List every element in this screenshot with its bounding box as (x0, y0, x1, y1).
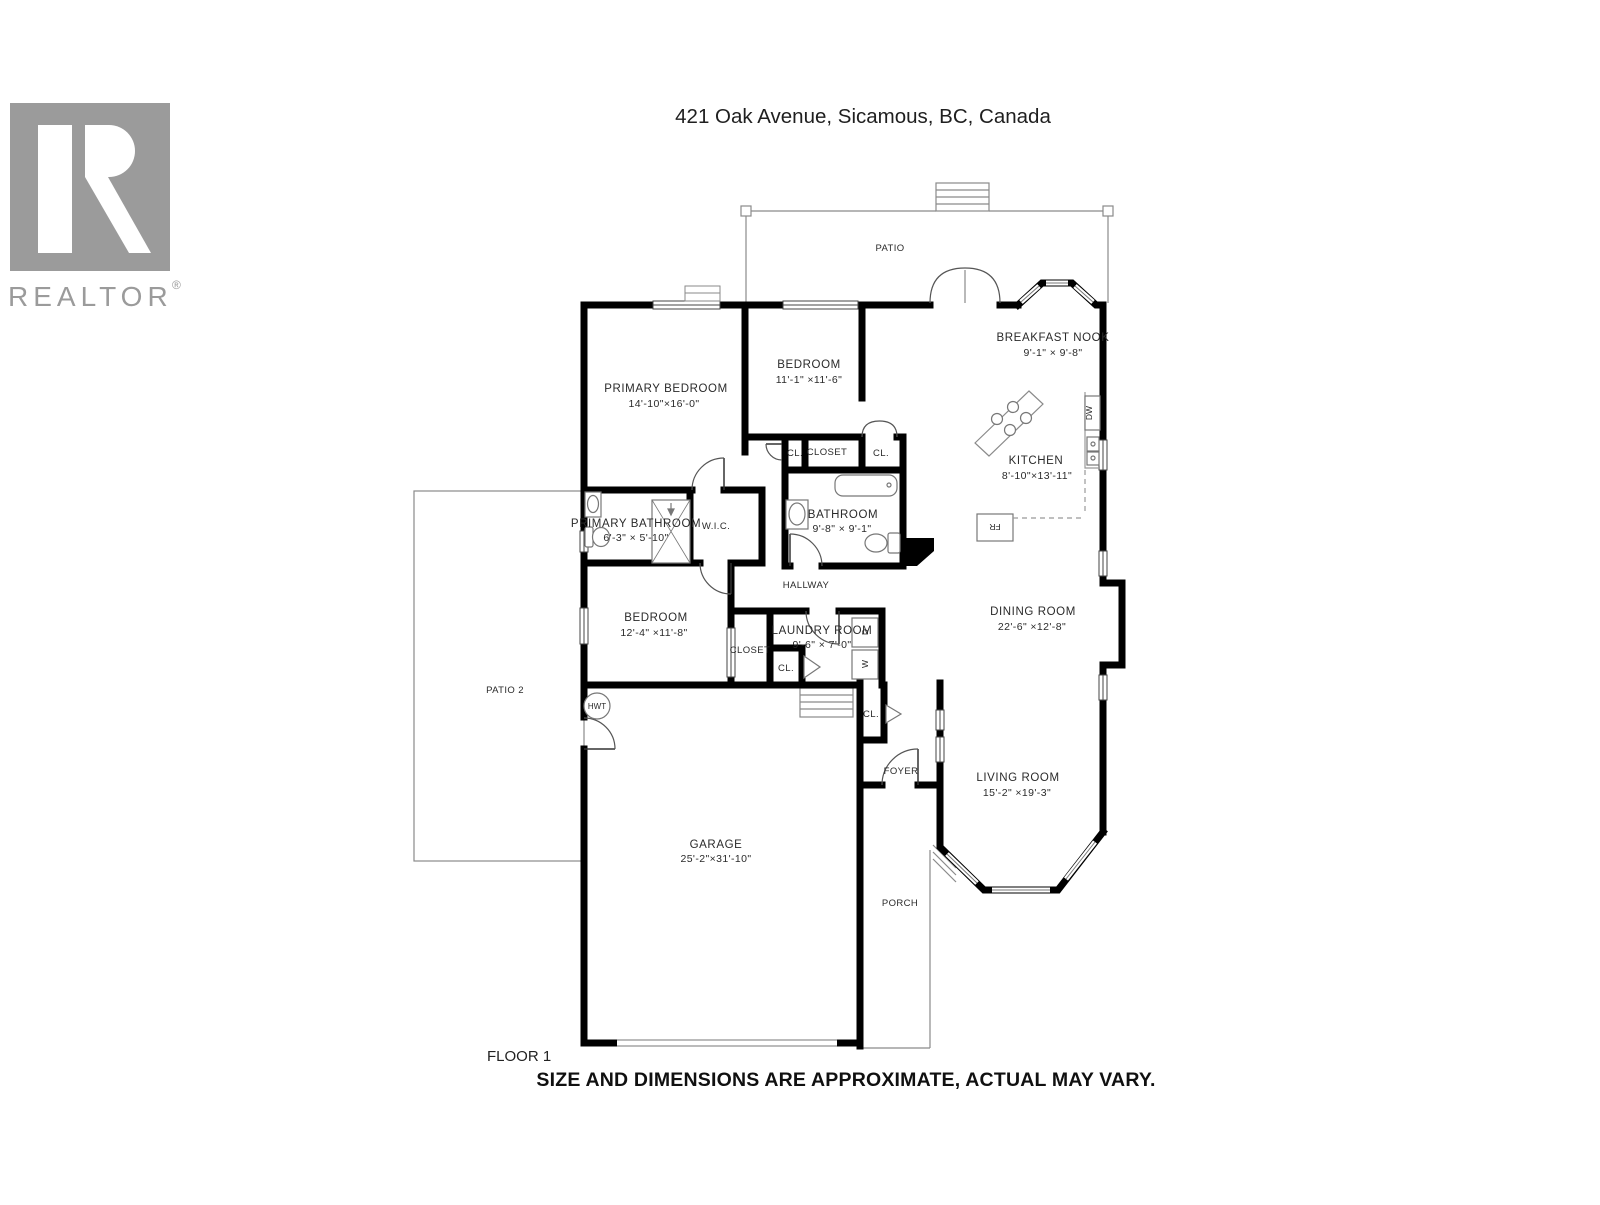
bedroom-closet-double-door (862, 421, 897, 437)
room-dims-laundry: 9'-6" × 7'-0" (793, 639, 852, 651)
floor-label: FLOOR 1 (487, 1048, 551, 1065)
burner (1021, 413, 1032, 424)
room-label-patio: PATIO (875, 243, 904, 254)
room-dims-bedroom-left: 12'-4" ×11'-8" (620, 627, 687, 639)
foyer-closet-bifold (886, 705, 901, 723)
bathroom-sink (786, 500, 808, 529)
room-dims-dining: 22'-6" ×12'-8" (998, 621, 1066, 633)
realtor-logo: REALTOR ® (8, 103, 181, 312)
room-dims-garage: 25'-2"×31'-10" (680, 853, 751, 865)
room-label-primary-bedroom: PRIMARY BEDROOM (604, 383, 728, 395)
burner (992, 414, 1003, 425)
room-label-dining: DINING ROOM (990, 606, 1076, 618)
realtor-logo-r-bowl (85, 125, 135, 177)
room-dims-living: 15'-2" ×19'-3" (983, 787, 1051, 799)
bathtub (835, 475, 897, 496)
laundry-closet-bifold (804, 656, 820, 678)
cooktop-counter (975, 391, 1043, 456)
disclaimer-text: SIZE AND DIMENSIONS ARE APPROXIMATE, ACT… (536, 1069, 1155, 1091)
patio-stairs (936, 183, 989, 211)
dining-bump-wall (1103, 583, 1122, 665)
room-label-porch: PORCH (882, 898, 918, 909)
room-labels: PATIO BREAKFAST NOOK 9'-1" × 9'-8" PRIMA… (486, 243, 1109, 909)
basement-stairs (800, 688, 853, 717)
fixture-label-dryer: D (860, 629, 870, 635)
room-label-foyer: FOYER (884, 766, 919, 777)
bathroom-toilet (865, 533, 900, 553)
bedroom-left-door (700, 563, 731, 594)
fixture-label-fr: FR (989, 522, 1000, 532)
room-label-cl-foyer: CL. (863, 709, 879, 720)
porch-outline (860, 850, 930, 1048)
fixture-label-washer: W (860, 660, 870, 668)
room-label-breakfast-nook: BREAKFAST NOOK (997, 332, 1110, 344)
garage-side-door (584, 718, 615, 749)
room-dims-bathroom: 9'-8" × 9'-1" (813, 523, 872, 535)
hall-closet-door (766, 444, 782, 460)
room-label-closet-mid: CLOSET (730, 645, 770, 656)
room-label-laundry: LAUNDRY ROOM (772, 625, 873, 637)
burner (1005, 425, 1016, 436)
room-dims-breakfast-nook: 9'-1" × 9'-8" (1024, 347, 1083, 359)
room-label-kitchen: KITCHEN (1009, 455, 1064, 467)
fireplace-block (903, 538, 934, 566)
fixture-label-hwt: HWT (588, 702, 606, 711)
room-label-garage: GARAGE (690, 839, 743, 851)
room-label-bedroom-left: BEDROOM (624, 612, 688, 624)
room-label-patio2: PATIO 2 (486, 685, 524, 696)
room-label-bathroom: BATHROOM (808, 509, 878, 521)
patio-post (1103, 206, 1113, 216)
registered-mark: ® (172, 278, 181, 292)
room-label-primary-bathroom: PRIMARY BATHROOM (571, 518, 701, 530)
room-dims-bedroom-top: 11'-1" ×11'-6" (776, 374, 843, 386)
room-label-living: LIVING ROOM (976, 772, 1059, 784)
room-label-hallway: HALLWAY (783, 580, 830, 591)
room-dims-primary-bedroom: 14'-10"×16'-0" (628, 398, 699, 410)
realtor-wordmark: REALTOR (8, 281, 173, 312)
room-label-bedroom-top: BEDROOM (777, 359, 841, 371)
primary-bath-sink (585, 492, 601, 517)
primary-bedroom-door (692, 458, 724, 490)
bathroom-door (790, 534, 822, 566)
room-label-wic: W.I.C. (702, 521, 730, 532)
page-title: 421 Oak Avenue, Sicamous, BC, Canada (675, 105, 1051, 128)
fixture-label-dw: DW (1084, 406, 1094, 420)
patio-french-door (930, 268, 1000, 303)
room-label-cl-left: CL. (787, 448, 803, 459)
room-label-cl-laundry: CL. (778, 663, 794, 674)
patio-post (741, 206, 751, 216)
room-dims-kitchen: 8'-10"×13'-11" (1002, 470, 1072, 482)
garage-door (617, 1038, 837, 1048)
room-label-closet-top: CLOSET (807, 447, 847, 458)
floor-plan-canvas: REALTOR ® 421 Oak Avenue, Sicamous, BC, … (0, 0, 1600, 1200)
realtor-logo-r-bar (38, 125, 72, 253)
burner (1008, 402, 1019, 413)
room-label-cl-right: CL. (873, 448, 889, 459)
room-dims-primary-bathroom: 6'-3" × 5'-10" (603, 532, 668, 544)
patio2-outline (414, 491, 584, 861)
